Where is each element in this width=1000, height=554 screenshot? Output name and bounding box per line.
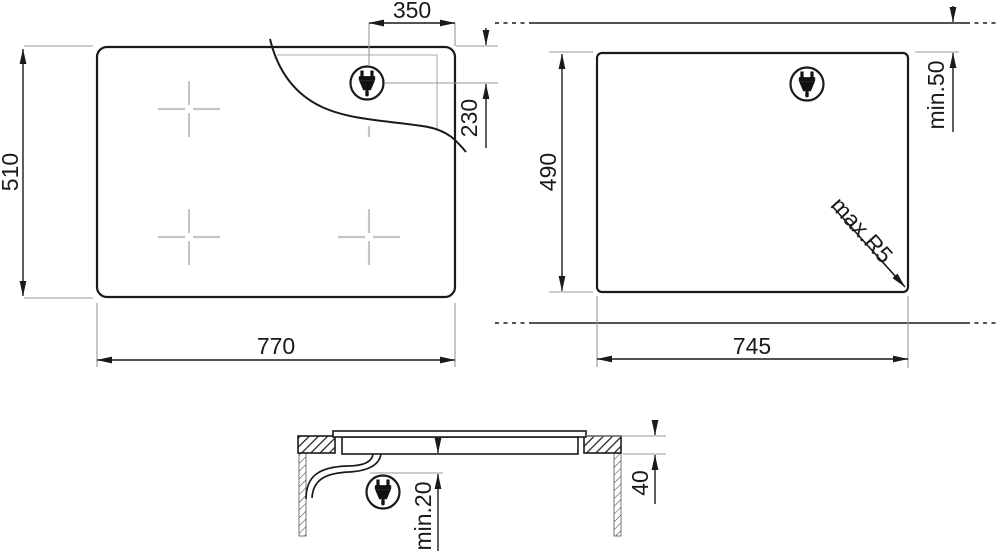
power-plug-icon [791, 68, 824, 101]
cutout-outline [597, 53, 908, 292]
installation-drawing: 510 770 350 230 [0, 0, 1000, 554]
cutout-view: 490 745 min.50 max.R5 [495, 6, 999, 368]
hob-glass-top [333, 431, 586, 437]
power-plug-icon [351, 67, 384, 100]
power-plug-icon [367, 476, 400, 509]
dim-label-490: 490 [535, 153, 561, 191]
dim-plan-height: 510 [0, 46, 93, 298]
dim-label-350: 350 [393, 0, 431, 23]
cabinet-wall-right [614, 453, 621, 536]
section-view: 40 min.20 [298, 420, 666, 551]
cabinet-wall-left [299, 453, 306, 536]
hob-body [342, 437, 578, 454]
hob-outline [97, 47, 455, 297]
worktop-section-left [298, 436, 335, 453]
dim-cutout-width: 745 [597, 296, 908, 368]
technical-diagram: 510 770 350 230 [0, 0, 1000, 554]
dim-hob-height: 40 [586, 420, 666, 504]
dim-label-40: 40 [627, 470, 653, 496]
dim-min-edge-distance: min.50 [915, 6, 959, 132]
dim-label-min50: min.50 [923, 60, 949, 129]
dim-plan-width: 770 [97, 303, 455, 367]
dim-label-510: 510 [0, 153, 23, 191]
dim-label-770: 770 [257, 333, 295, 359]
dim-label-745: 745 [733, 333, 771, 359]
worktop-section-right [584, 436, 621, 453]
dim-label-230: 230 [456, 99, 482, 137]
dim-cutout-height: 490 [535, 52, 593, 292]
dim-label-min20: min.20 [410, 481, 436, 550]
plan-view: 510 770 350 230 [0, 0, 498, 367]
